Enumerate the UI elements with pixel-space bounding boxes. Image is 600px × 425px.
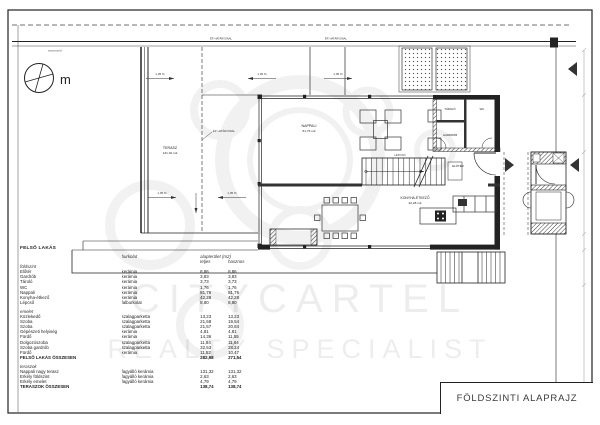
svg-text:1,05 %: 1,05 % xyxy=(257,72,267,76)
room-label-nappali: NAPPALI xyxy=(302,124,317,128)
room-label-konyha: KONYHA-ÉTKEZŐ xyxy=(400,195,429,200)
area-table-header: burkolat alapterület (m2) teljes hasznos xyxy=(20,254,256,264)
svg-text:1,05 %: 1,05 % xyxy=(155,72,165,76)
title-block: FÖLDSZINTI ALAPRAJZ xyxy=(440,382,593,414)
room-label-terasz: TERASZ xyxy=(163,146,178,150)
room-label-wc: WC xyxy=(480,107,485,111)
room-label-eloter: ELŐTÉR xyxy=(452,163,464,168)
room-area-nappali: 81,76 m2 xyxy=(303,129,316,133)
area-table: burkolat alapterület (m2) teljes hasznos… xyxy=(20,254,256,389)
area-schedule: FELSŐ LAKÁS burkolat alapterület (m2) te… xyxy=(20,246,258,389)
dimension-chain xyxy=(582,48,586,387)
room-area-terasz: 131,32 m2 xyxy=(163,151,178,155)
boundary-label: ÉP. HATÁRVONAL xyxy=(325,36,347,41)
boundary-label: ÉP. HATÁRVONAL xyxy=(210,36,232,41)
room-area-konyha: 42,28 m2 xyxy=(409,201,422,205)
area-table-body: földszintElőtérkerámia8,868,86Gardróbker… xyxy=(20,264,256,389)
compass-label: m xyxy=(60,72,71,87)
room-label-gardrob: GARDRÓB xyxy=(443,132,457,137)
neighbor-label: szomszéd xyxy=(48,49,62,53)
table-row: TERASZOK ÖSSZESEN138,74138,74 xyxy=(20,384,256,389)
svg-text:1,05 %: 1,05 % xyxy=(157,191,167,195)
room-label-tarolo: TÁROLÓ xyxy=(444,106,456,111)
area-table-title: FELSŐ LAKÁS xyxy=(20,246,258,251)
drawing-title: FÖLDSZINTI ALAPRAJZ xyxy=(457,393,578,404)
svg-text:1,05 %: 1,05 % xyxy=(227,191,237,195)
compass-symbol: m xyxy=(25,64,71,93)
drawing-sheet: { "sheet": { "title": "FÖLDSZINTI ALAPRA… xyxy=(0,0,600,425)
street-gate xyxy=(504,62,579,236)
svg-text:1,05 %: 1,05 % xyxy=(333,72,343,76)
room-label-lepcso: LÉPCSŐ xyxy=(394,152,406,157)
gravel-strips xyxy=(399,46,470,92)
